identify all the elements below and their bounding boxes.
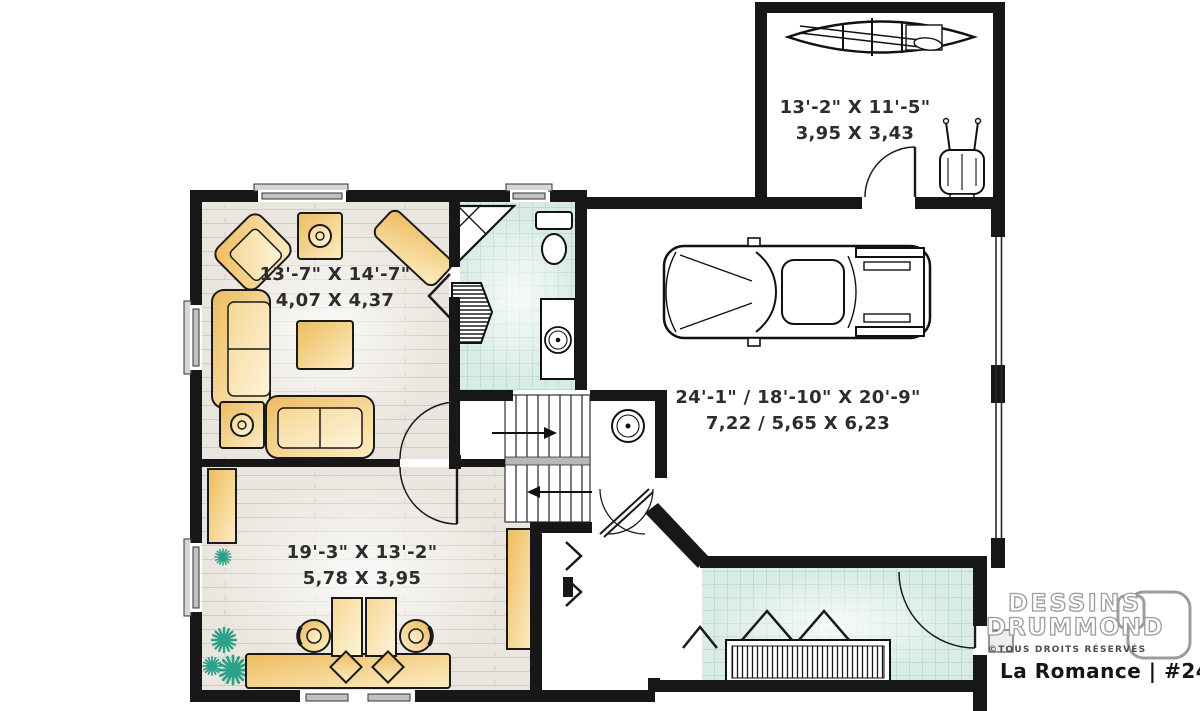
garage-dimensions: 24'-1" / 18'-10" X 20'-9" 7,22 / 5,65 X … xyxy=(663,385,933,437)
folding-door-icon xyxy=(566,542,581,570)
plant-icon xyxy=(219,656,247,684)
desk-return-icon xyxy=(332,598,362,656)
tall-cabinet-icon xyxy=(208,469,236,543)
window xyxy=(300,690,415,702)
plant-icon xyxy=(215,549,231,565)
plan-title: La Romance | #2480 xyxy=(1000,659,1200,683)
office-chair-icon xyxy=(298,620,330,652)
vanity-sink-icon xyxy=(541,299,575,379)
loveseat-icon xyxy=(266,396,374,458)
door-swing-arc xyxy=(865,147,915,197)
dimension-imperial: 24'-1" / 18'-10" X 20'-9" xyxy=(663,385,933,411)
plant-icon xyxy=(203,657,221,675)
brand-name-line2: DRUMMOND xyxy=(986,613,1164,641)
desk-return-icon xyxy=(366,598,396,656)
family-room-dimensions: 13'-7" X 14'-7" 4,07 X 4,37 xyxy=(225,262,445,314)
office-chair-icon xyxy=(400,620,432,652)
storage-room-dimensions: 13'-2" X 11'-5" 3,95 X 3,43 xyxy=(745,95,965,147)
floor-plan-canvas: 13'-2" X 11'-5" 3,95 X 3,43 13'-7" X 14'… xyxy=(0,0,1200,711)
plant-icon xyxy=(212,628,236,652)
closet-hanging-rod xyxy=(726,640,890,684)
office-dimensions: 19'-3" X 13'-2" 5,78 X 3,95 xyxy=(252,540,472,592)
window xyxy=(184,539,202,616)
pickup-truck-icon xyxy=(664,238,930,346)
bookshelf-icon xyxy=(507,529,532,649)
dimension-metric: 5,78 X 3,95 xyxy=(252,566,472,592)
dimension-imperial: 19'-3" X 13'-2" xyxy=(252,540,472,566)
window xyxy=(506,184,552,202)
water-heater-icon xyxy=(612,410,644,442)
coffee-table-icon xyxy=(297,321,353,369)
window xyxy=(254,184,348,202)
window xyxy=(184,301,202,374)
dimension-imperial: 13'-2" X 11'-5" xyxy=(745,95,965,121)
canoe-icon xyxy=(788,18,974,56)
dimension-metric: 3,95 X 3,43 xyxy=(745,121,965,147)
lamp-table-icon xyxy=(220,402,264,448)
dimension-imperial: 13'-7" X 14'-7" xyxy=(225,262,445,288)
copyright-notice: ©TOUS DROITS RÉSERVÉS xyxy=(988,645,1146,655)
dimension-metric: 7,22 / 5,65 X 6,23 xyxy=(663,411,933,437)
lamp-table-icon xyxy=(298,213,342,259)
dimension-metric: 4,07 X 4,37 xyxy=(225,288,445,314)
